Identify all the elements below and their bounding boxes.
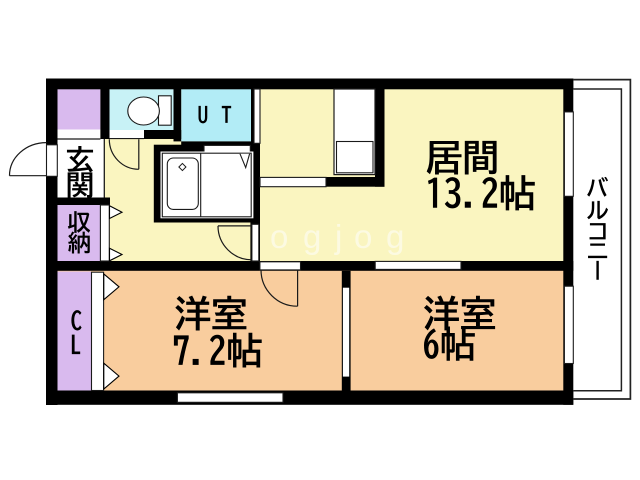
svg-text:g: g: [386, 218, 404, 255]
svg-text:j: j: [334, 218, 342, 255]
svg-text:o: o: [354, 218, 372, 255]
svg-text:o: o: [270, 218, 288, 255]
svg-text:g: g: [303, 218, 321, 255]
